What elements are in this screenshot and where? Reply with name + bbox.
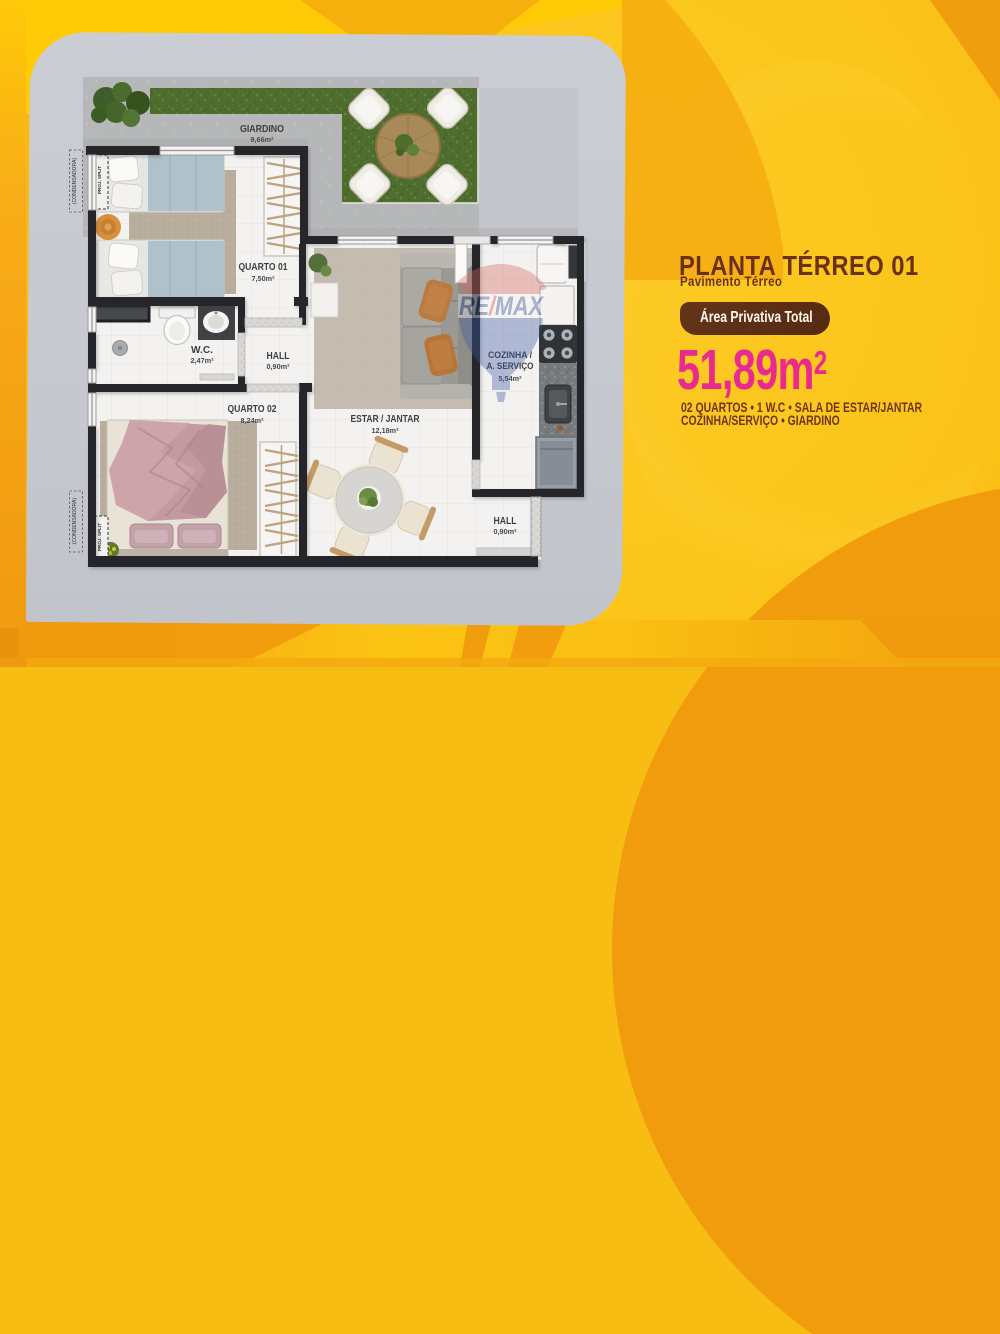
svg-text:GIARDINO: GIARDINO — [240, 123, 284, 135]
svg-text:(CONDENSADORA): (CONDENSADORA) — [72, 498, 78, 544]
svg-text:7,50m²: 7,50m² — [252, 274, 275, 283]
svg-text:RE/MAX: RE/MAX — [459, 291, 545, 321]
svg-text:(CONDENSADORA): (CONDENSADORA) — [72, 158, 78, 204]
svg-text:W.C.: W.C. — [191, 344, 213, 356]
svg-text:2,47m²: 2,47m² — [191, 356, 214, 365]
svg-text:PROJ. SPLIT: PROJ. SPLIT — [97, 523, 102, 551]
svg-text:HALL: HALL — [494, 515, 517, 527]
svg-text:HALL: HALL — [267, 350, 290, 362]
svg-text:ESTAR / JANTAR: ESTAR / JANTAR — [351, 413, 420, 425]
svg-text:PROJ. SPLIT: PROJ. SPLIT — [97, 166, 102, 194]
svg-text:0,90m²: 0,90m² — [494, 527, 517, 536]
svg-text:9,66m²: 9,66m² — [251, 135, 274, 144]
svg-text:8,24m²: 8,24m² — [241, 416, 264, 425]
svg-text:0,90m²: 0,90m² — [267, 362, 290, 371]
svg-text:QUARTO 01: QUARTO 01 — [239, 261, 288, 273]
svg-text:QUARTO 02: QUARTO 02 — [228, 403, 277, 415]
svg-text:12,18m²: 12,18m² — [372, 426, 399, 435]
